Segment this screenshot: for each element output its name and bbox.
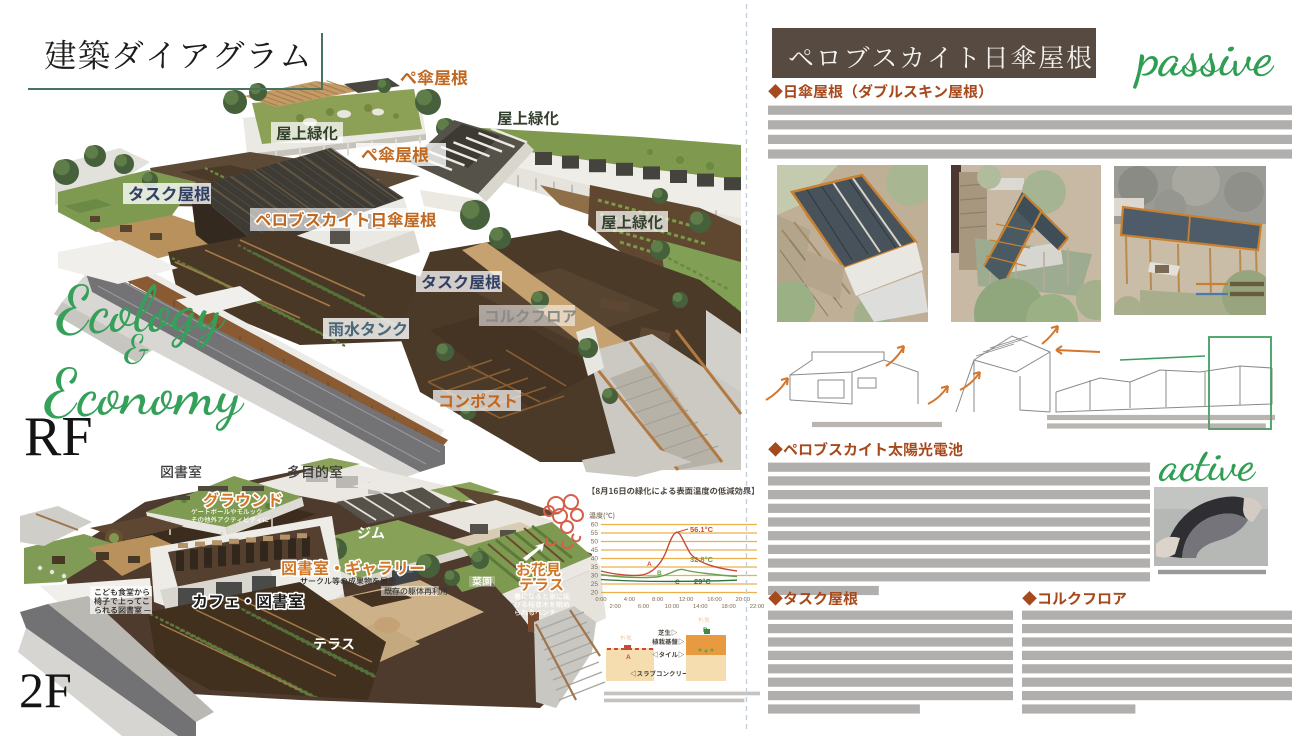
svg-text:RF: RF [24,406,93,468]
svg-text:18:00: 18:00 [721,604,736,610]
svg-text:32.8°C: 32.8°C [690,555,714,564]
svg-text:4:00: 4:00 [624,597,635,603]
svg-text:10:00: 10:00 [665,604,680,610]
svg-text:12:00: 12:00 [679,597,694,603]
svg-text:25: 25 [591,581,599,588]
svg-text:35: 35 [591,564,599,571]
svg-text:22:00: 22:00 [750,604,765,610]
svg-text:40: 40 [591,556,599,563]
svg-text:30: 30 [591,573,599,580]
svg-text:14:00: 14:00 [693,604,708,610]
svg-text:29°C: 29°C [694,577,711,586]
svg-text:6:00: 6:00 [638,604,649,610]
svg-text:B: B [657,570,662,577]
svg-text:20:00: 20:00 [736,597,751,603]
svg-text:2F: 2F [19,662,72,718]
svg-text:2:00: 2:00 [610,604,621,610]
svg-text:16:00: 16:00 [707,597,722,603]
svg-text:8:00: 8:00 [652,597,663,603]
svg-text:60: 60 [591,522,599,529]
svg-text:0:00: 0:00 [595,597,606,603]
svg-text:55: 55 [591,530,599,537]
svg-text:C: C [675,579,680,586]
svg-text:A: A [647,561,652,568]
svg-text:56.1°C: 56.1°C [690,525,714,534]
svg-text:50: 50 [591,539,599,546]
svg-text:45: 45 [591,547,599,554]
svg-text:A: A [626,654,631,661]
svg-text:20: 20 [591,590,599,597]
